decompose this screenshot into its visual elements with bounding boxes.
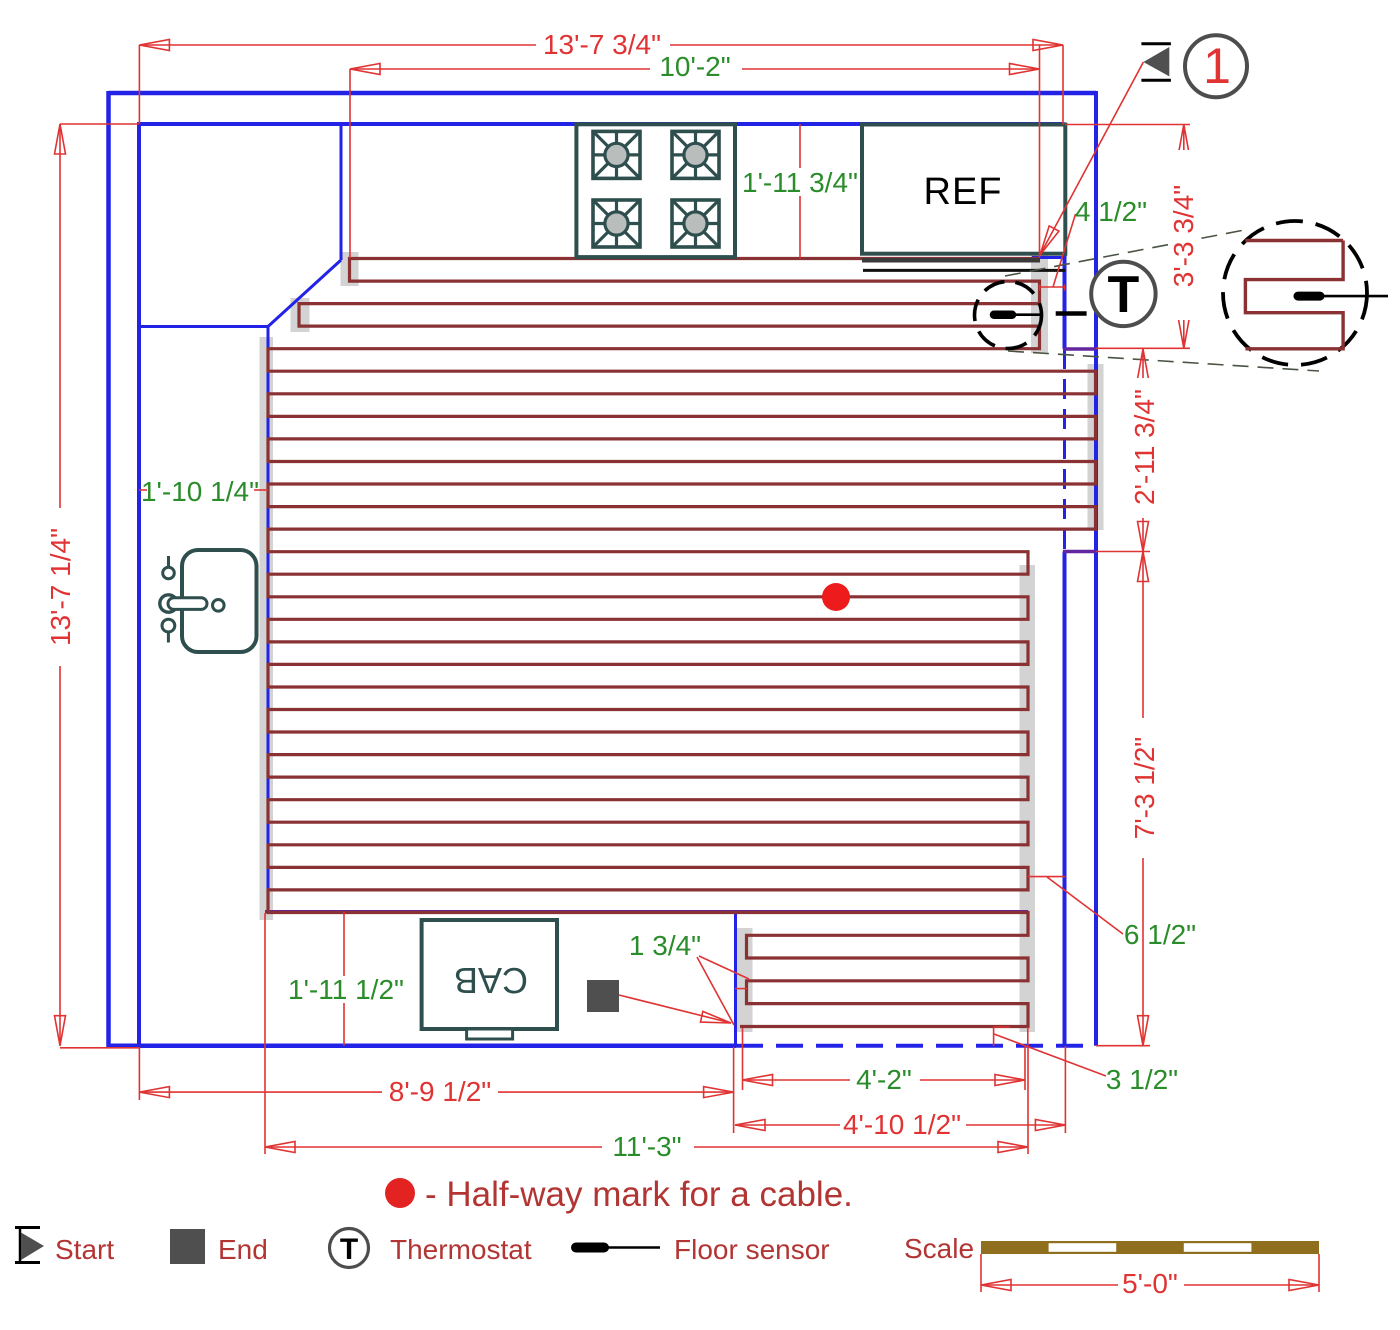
svg-text:1: 1 <box>1203 38 1231 94</box>
svg-text:1'-11 1/2": 1'-11 1/2" <box>288 974 404 1005</box>
svg-text:T: T <box>340 1233 358 1266</box>
svg-text:T: T <box>1108 266 1140 324</box>
svg-text:1'-10 1/4": 1'-10 1/4" <box>141 476 259 507</box>
svg-text:Floor sensor: Floor sensor <box>674 1234 830 1265</box>
svg-text:Start: Start <box>55 1234 114 1265</box>
svg-text:13'-7 3/4": 13'-7 3/4" <box>543 29 661 60</box>
svg-text:4'-2": 4'-2" <box>856 1064 912 1095</box>
svg-text:2'-11 3/4": 2'-11 3/4" <box>1129 389 1160 505</box>
svg-text:13'-7 1/4": 13'-7 1/4" <box>45 528 76 646</box>
svg-text:1 3/4": 1 3/4" <box>629 930 701 961</box>
svg-text:4 1/2": 4 1/2" <box>1075 196 1147 227</box>
svg-text:Thermostat: Thermostat <box>390 1234 532 1265</box>
svg-text:REF: REF <box>924 171 1003 213</box>
svg-text:4'-10 1/2": 4'-10 1/2" <box>843 1109 961 1140</box>
svg-text:8'-9 1/2": 8'-9 1/2" <box>389 1076 491 1107</box>
svg-text:3'-3 3/4": 3'-3 3/4" <box>1168 185 1199 287</box>
svg-text:End: End <box>218 1234 268 1265</box>
svg-text:7'-3 1/2": 7'-3 1/2" <box>1129 737 1160 839</box>
svg-text:6 1/2": 6 1/2" <box>1124 919 1196 950</box>
svg-text:5'-0": 5'-0" <box>1122 1268 1178 1299</box>
svg-text:10'-2": 10'-2" <box>659 51 730 82</box>
svg-text:Scale: Scale <box>904 1233 974 1264</box>
svg-text:11'-3": 11'-3" <box>612 1131 681 1162</box>
svg-text:CAB: CAB <box>454 960 528 1001</box>
svg-text:- Half-way mark for a cable.: - Half-way mark for a cable. <box>425 1175 853 1214</box>
svg-text:3 1/2": 3 1/2" <box>1106 1064 1178 1095</box>
svg-text:1'-11 3/4": 1'-11 3/4" <box>742 167 858 198</box>
